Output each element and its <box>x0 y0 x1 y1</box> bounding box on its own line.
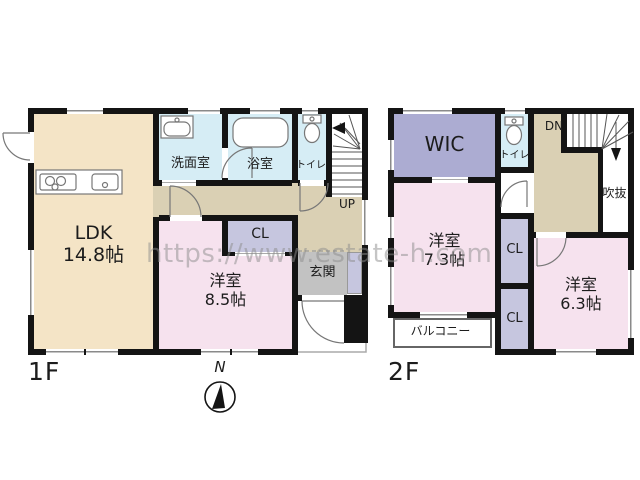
watermark-text: https://www.estate-h.com <box>146 239 492 269</box>
window <box>420 312 467 318</box>
exterior-door-arc <box>3 133 30 160</box>
exterior-door-opening <box>28 132 34 163</box>
door-opening <box>170 215 202 221</box>
front-door-opening <box>302 295 344 301</box>
wall <box>501 283 528 289</box>
label-balcony: バルコニー <box>393 324 488 338</box>
label-stairs-up: UP <box>332 197 362 211</box>
wall <box>292 215 298 349</box>
window <box>67 108 103 114</box>
window <box>628 270 634 338</box>
window <box>46 349 84 355</box>
window <box>403 108 452 114</box>
sliding-door <box>432 177 468 183</box>
label-toilet-2f: トイレ <box>497 150 532 162</box>
floorplan-canvas: LDK 14.8帖 洗面室 浴室 トイレ UP CL 洋室 8.5帖 玄関 1F… <box>0 0 640 480</box>
label-bathroom: 浴室 <box>228 157 292 172</box>
porch-outline <box>298 343 366 352</box>
window <box>302 108 318 114</box>
label-floor2: 2F <box>388 357 420 387</box>
door-opening <box>528 173 534 213</box>
front-door-arc <box>302 301 344 343</box>
label-closet-2f-lower: CL <box>501 311 528 326</box>
ldk-size: 14.8帖 <box>34 244 153 266</box>
window <box>86 349 118 355</box>
wall <box>292 114 298 183</box>
passage-opening <box>292 183 298 215</box>
bedroom63-size: 6.3帖 <box>534 295 628 314</box>
label-wic: WIC <box>394 133 495 157</box>
label-void: 吹抜 <box>599 186 630 200</box>
label-ldk: LDK 14.8帖 <box>34 222 153 267</box>
bedroom63-name: 洋室 <box>534 276 628 295</box>
sliding-door <box>162 180 196 186</box>
label-stairs-down: DN <box>541 119 567 133</box>
label-closet-2f-upper: CL <box>501 242 528 257</box>
ldk-name: LDK <box>34 222 153 244</box>
window <box>232 349 258 355</box>
wall <box>528 108 534 173</box>
wall <box>153 114 159 186</box>
door-opening <box>153 186 159 217</box>
window <box>505 108 525 114</box>
label-bedroom-63: 洋室 6.3帖 <box>534 276 628 314</box>
label-north: N <box>205 359 235 377</box>
stairs-down-arrow <box>611 148 621 161</box>
toilet-nook-2f <box>501 173 528 213</box>
bedroom85-size: 8.5帖 <box>159 291 292 310</box>
compass-icon <box>205 382 235 412</box>
window <box>388 267 394 305</box>
wall <box>501 167 528 173</box>
window <box>556 349 596 355</box>
wall <box>561 147 603 153</box>
label-floor1: 1F <box>28 357 60 387</box>
wall <box>501 213 528 219</box>
compass-needle <box>212 384 225 409</box>
door-opening <box>300 180 324 186</box>
window <box>188 108 220 114</box>
bedroom85-name: 洋室 <box>159 272 292 291</box>
window <box>250 108 280 114</box>
label-bedroom-85: 洋室 8.5帖 <box>159 272 292 310</box>
stairs-area-2f <box>567 114 634 148</box>
label-toilet-1f: トイレ <box>294 160 328 172</box>
label-washroom: 洗面室 <box>159 156 222 171</box>
wall-porch-block <box>344 301 362 343</box>
door-opening <box>536 232 566 238</box>
stairs-area-1f <box>332 114 362 197</box>
window <box>201 349 230 355</box>
